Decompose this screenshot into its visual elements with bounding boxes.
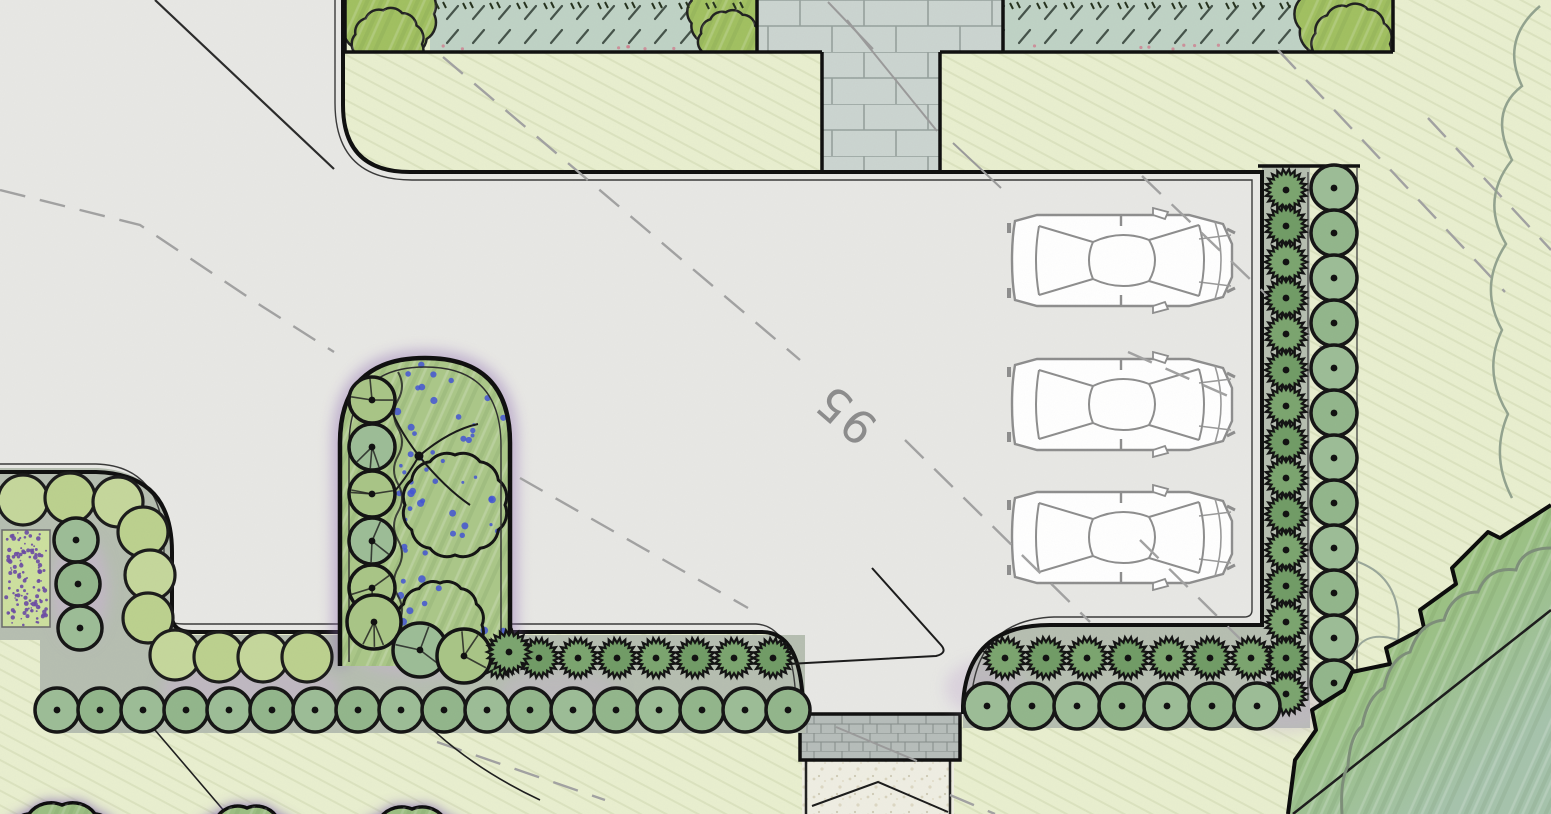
- pink-fleck: [461, 47, 464, 50]
- light-shrub-symbol: [45, 473, 95, 523]
- round-shrub-symbol: [56, 562, 100, 606]
- round-shrub-symbol: [54, 518, 98, 562]
- purple-speckle: [33, 555, 38, 560]
- flower-dot: [430, 371, 436, 377]
- tree-symbol: [349, 424, 395, 470]
- flower-dot: [466, 437, 472, 443]
- flower-dot: [471, 434, 475, 438]
- flower-dot: [417, 500, 424, 507]
- round-shrub-symbol: [1311, 255, 1357, 301]
- purple-speckle: [10, 567, 12, 569]
- purple-speckle: [4, 595, 8, 599]
- flower-dot: [406, 607, 413, 614]
- purple-speckle: [26, 614, 30, 618]
- purple-speckle: [8, 587, 11, 590]
- car: [1009, 208, 1235, 313]
- paver-crossing: [800, 714, 960, 760]
- purple-speckle: [11, 622, 13, 624]
- purple-speckle: [43, 569, 46, 572]
- flower-dot: [422, 601, 428, 607]
- round-shrub-symbol: [35, 688, 79, 732]
- purple-speckle: [17, 532, 19, 534]
- purple-speckle: [24, 601, 29, 606]
- purple-speckle: [24, 543, 26, 545]
- flower-dot: [460, 436, 466, 442]
- purple-speckle: [21, 618, 23, 620]
- purple-speckle: [33, 545, 35, 547]
- purple-speckle: [23, 596, 27, 600]
- purple-speckle: [11, 615, 15, 619]
- flower-dot: [405, 371, 411, 377]
- round-shrub-symbol: [1144, 683, 1190, 729]
- pink-fleck: [1033, 44, 1036, 47]
- pink-fleck: [1182, 44, 1185, 47]
- purple-speckle: [20, 547, 22, 549]
- purple-speckle: [30, 549, 34, 553]
- flower-dot: [461, 522, 468, 529]
- round-shrub-symbol: [723, 688, 767, 732]
- purple-speckle: [45, 550, 47, 552]
- pink-fleck: [617, 46, 620, 49]
- purple-speckle: [31, 602, 36, 607]
- round-shrub-symbol: [964, 683, 1010, 729]
- flower-dot: [412, 431, 417, 436]
- purple-speckle: [23, 579, 27, 583]
- flower-dot: [401, 579, 406, 584]
- purple-speckle: [26, 548, 30, 552]
- round-shrub-symbol: [680, 688, 724, 732]
- purple-speckle: [8, 612, 10, 614]
- purple-speckle: [20, 563, 22, 565]
- flower-dot: [430, 397, 437, 404]
- round-shrub-symbol: [293, 688, 337, 732]
- site-plan-canvas: 95: [0, 0, 1551, 814]
- purple-speckle: [37, 589, 40, 592]
- flower-dot: [449, 510, 456, 517]
- purple-speckle: [39, 600, 42, 603]
- round-shrub-symbol: [207, 688, 251, 732]
- flower-dot: [407, 490, 414, 497]
- purple-speckle: [29, 599, 32, 602]
- flower-dot: [436, 585, 442, 591]
- purple-speckle: [8, 571, 12, 575]
- round-shrub-symbol: [1311, 210, 1357, 256]
- pink-fleck: [1193, 44, 1196, 47]
- purple-speckle: [10, 534, 14, 538]
- purple-speckle: [22, 551, 25, 554]
- purple-speckle: [14, 552, 18, 556]
- round-shrub-symbol: [465, 688, 509, 732]
- purple-speckle: [38, 563, 42, 567]
- purple-speckle: [24, 536, 27, 539]
- flower-dot: [433, 478, 439, 484]
- tree-symbol: [437, 629, 491, 683]
- pink-fleck: [1147, 46, 1150, 49]
- flower-dot: [408, 506, 413, 511]
- round-shrub-symbol: [78, 688, 122, 732]
- round-shrub-symbol: [250, 688, 294, 732]
- round-shrub-symbol: [422, 688, 466, 732]
- purple-speckle: [45, 599, 48, 602]
- tree-symbol: [349, 377, 395, 423]
- round-shrub-symbol: [58, 606, 102, 650]
- purple-speckle: [16, 589, 19, 592]
- purple-speckle: [31, 607, 33, 609]
- purple-speckle: [36, 617, 39, 620]
- round-shrub-symbol: [1009, 683, 1055, 729]
- car: [1009, 352, 1235, 457]
- flower-dot: [456, 414, 462, 420]
- purple-speckle: [15, 599, 18, 602]
- flower-dot: [399, 464, 403, 468]
- purple-speckle: [36, 559, 40, 563]
- purple-speckle: [40, 580, 42, 582]
- pink-fleck: [1139, 46, 1142, 49]
- purple-speckle: [22, 624, 25, 627]
- flower-dot: [423, 550, 428, 555]
- purple-speckle: [13, 565, 17, 569]
- round-shrub-symbol: [336, 688, 380, 732]
- flower-dot: [474, 476, 477, 479]
- purple-speckle: [26, 593, 28, 595]
- purple-speckle: [25, 608, 29, 612]
- flower-dot: [461, 481, 464, 484]
- flower-dot: [470, 428, 475, 433]
- purple-speckle: [29, 556, 32, 559]
- round-shrub-symbol: [1189, 683, 1235, 729]
- round-shrub-symbol: [1311, 300, 1357, 346]
- purple-speckle: [20, 560, 22, 562]
- flower-dot: [430, 450, 435, 455]
- purple-speckle: [26, 577, 28, 579]
- purple-speckle: [6, 538, 9, 541]
- purple-speckle: [8, 580, 11, 583]
- purple-speckle: [35, 594, 39, 598]
- round-shrub-symbol: [594, 688, 638, 732]
- tree-symbol: [349, 518, 395, 564]
- flower-dot: [418, 575, 426, 583]
- round-shrub-symbol: [1311, 525, 1357, 571]
- light-shrub-symbol: [0, 475, 48, 525]
- purple-speckle: [42, 610, 46, 614]
- purple-speckle: [13, 570, 17, 574]
- purple-speckle: [36, 610, 38, 612]
- flower-dot: [441, 459, 445, 463]
- light-shrub-symbol: [282, 632, 332, 682]
- round-shrub-symbol: [508, 688, 552, 732]
- round-shrub-symbol: [164, 688, 208, 732]
- purple-speckle: [40, 554, 43, 557]
- flower-dot: [415, 385, 420, 390]
- purple-speckle: [42, 586, 45, 589]
- flower-dot: [402, 470, 406, 474]
- paver-patio: [757, 0, 1003, 52]
- round-shrub-symbol: [551, 688, 595, 732]
- round-shrub-symbol: [379, 688, 423, 732]
- round-shrub-symbol: [637, 688, 681, 732]
- flower-dot: [450, 531, 456, 537]
- purple-speckle: [13, 610, 16, 613]
- round-shrub-symbol: [1311, 390, 1357, 436]
- flower-dot: [489, 523, 492, 526]
- purple-speckle: [39, 533, 41, 535]
- purple-speckle: [7, 548, 11, 552]
- round-shrub-symbol: [121, 688, 165, 732]
- round-shrub-symbol: [1311, 570, 1357, 616]
- parked-cars: [1009, 208, 1235, 590]
- purple-speckle: [22, 571, 25, 574]
- purple-speckle: [36, 621, 38, 623]
- flower-dot: [460, 533, 465, 538]
- entry-path: [800, 714, 960, 814]
- purple-speckle: [33, 586, 36, 589]
- flower-dot: [488, 496, 496, 504]
- pink-fleck: [1217, 44, 1220, 47]
- purple-speckle: [35, 548, 38, 551]
- round-shrub-symbol: [1099, 683, 1145, 729]
- purple-speckle: [42, 613, 45, 616]
- purple-speckle: [36, 536, 41, 541]
- pink-fleck: [1171, 47, 1174, 50]
- purple-speckle: [30, 609, 33, 612]
- round-shrub-symbol: [1234, 683, 1280, 729]
- purple-speckle: [6, 558, 11, 563]
- round-shrub-symbol: [1311, 435, 1357, 481]
- purple-speckle: [17, 538, 20, 541]
- pink-fleck: [442, 44, 445, 47]
- flower-dot: [408, 424, 415, 431]
- pink-fleck: [643, 47, 646, 50]
- purple-speckle: [21, 595, 23, 597]
- round-shrub-symbol: [1311, 480, 1357, 526]
- purple-speckle: [14, 597, 16, 599]
- purple-speckle: [11, 569, 13, 571]
- purple-speckle: [29, 534, 33, 538]
- landscape-plan-drawing: 95: [0, 0, 1551, 814]
- pink-fleck: [672, 47, 675, 50]
- round-shrub-symbol: [1311, 615, 1357, 661]
- pink-fleck: [627, 45, 630, 48]
- purple-speckle: [36, 605, 40, 609]
- round-shrub-symbol: [1311, 345, 1357, 391]
- round-shrub-symbol: [766, 688, 810, 732]
- purple-speckle: [23, 589, 26, 592]
- purple-speckle: [17, 575, 21, 579]
- purple-speckle: [16, 593, 20, 597]
- purple-speckle: [31, 544, 33, 546]
- flower-dot: [449, 378, 454, 383]
- tree-symbol: [349, 471, 395, 517]
- purple-speckle: [37, 569, 41, 573]
- purple-speckle: [20, 585, 24, 589]
- purple-speckle: [16, 603, 19, 606]
- purple-speckle: [12, 592, 14, 594]
- flower-dot: [408, 451, 414, 457]
- purple-speckle: [37, 579, 41, 583]
- round-shrub-symbol: [1311, 165, 1357, 211]
- purple-speckle: [24, 530, 29, 535]
- round-shrub-symbol: [1054, 683, 1100, 729]
- car: [1009, 485, 1235, 590]
